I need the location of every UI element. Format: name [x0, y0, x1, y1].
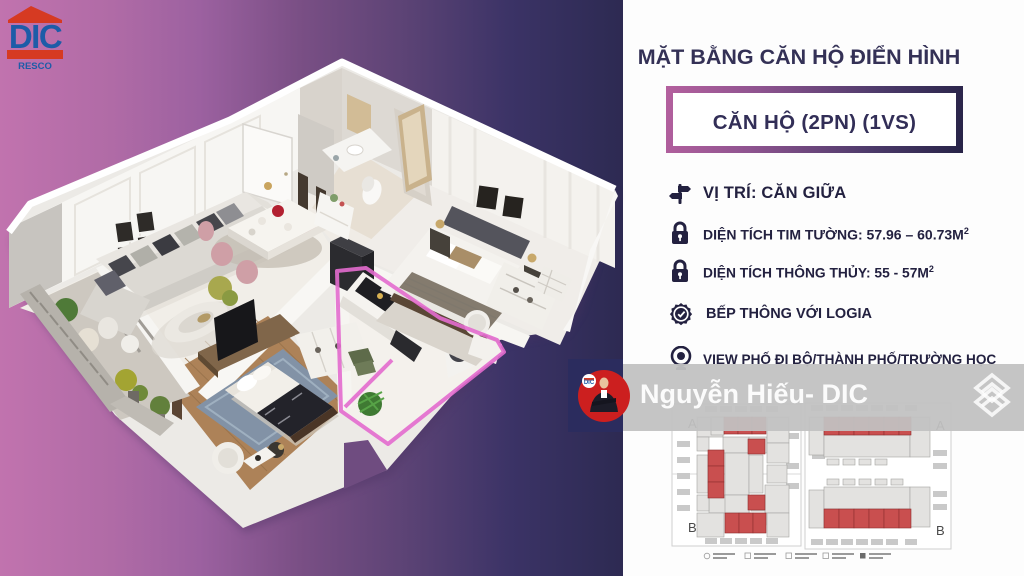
svg-text:DIC: DIC [9, 18, 62, 55]
svg-text:B: B [688, 520, 697, 535]
svg-text:DIC: DIC [584, 380, 595, 386]
svg-text:RESCO: RESCO [18, 61, 52, 72]
svg-text:B: B [936, 523, 945, 538]
